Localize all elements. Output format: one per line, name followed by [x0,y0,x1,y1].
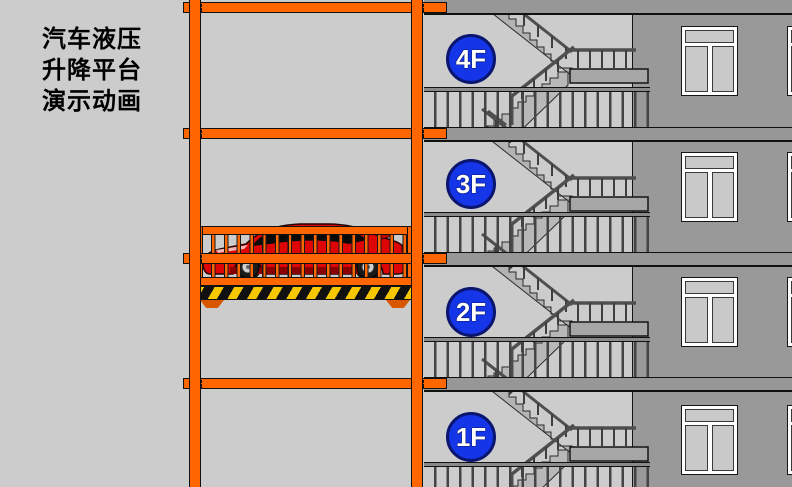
title-line-1: 汽车液压 [20,24,164,55]
frame-column-left [189,0,201,487]
floor-railing-balusters-2f [424,342,650,377]
window-transom [685,281,734,294]
window-pane [712,46,735,92]
window-pane [685,46,708,92]
window-2f [681,277,738,347]
window-1f-partial [787,405,792,475]
platform-bracket-right [386,300,410,308]
floor-railing-balusters-3f [424,217,650,252]
frame-beam-2f [183,253,447,264]
platform-hazard-stripe-panel [194,286,416,300]
floor-railing-balusters-4f [424,92,650,127]
frame-beam-3f [183,128,447,139]
frame-beam-1f [183,378,447,389]
window-3f [681,152,738,222]
window-pane [685,425,708,471]
floor-slab-2f-1f [424,377,792,392]
platform-cage-top-rail [196,226,414,235]
window-pane [712,172,735,218]
title-line-2: 升降平台 [20,55,164,86]
window-pane [712,297,735,343]
platform-deck [194,277,416,286]
window-3f-partial [787,152,792,222]
floor-badge-2f: 2F [446,287,496,337]
platform-bracket-left [200,300,224,308]
roof-band [424,0,792,15]
car-lift-animation-scene: 汽车液压 升降平台 演示动画 [0,0,792,487]
floor-badge-3f: 3F [446,159,496,209]
floor-badge-1f: 1F [446,412,496,462]
window-pane [685,172,708,218]
window-transom [685,30,734,43]
window-transom [685,409,734,422]
floor-slab-3f-2f [424,252,792,267]
window-pane [685,297,708,343]
floor-badge-4f: 4F [446,34,496,84]
frame-beam-top [183,2,447,13]
window-4f-partial [787,26,792,96]
frame-column-right [411,0,423,487]
window-2f-partial [787,277,792,347]
floor-railing-balusters-1f [424,467,650,487]
window-transom [685,156,734,169]
window-pane [712,425,735,471]
title-line-3: 演示动画 [20,86,164,117]
window-1f [681,405,738,475]
window-4f [681,26,738,96]
floor-slab-4f-3f [424,127,792,142]
page-title: 汽车液压 升降平台 演示动画 [20,24,164,117]
